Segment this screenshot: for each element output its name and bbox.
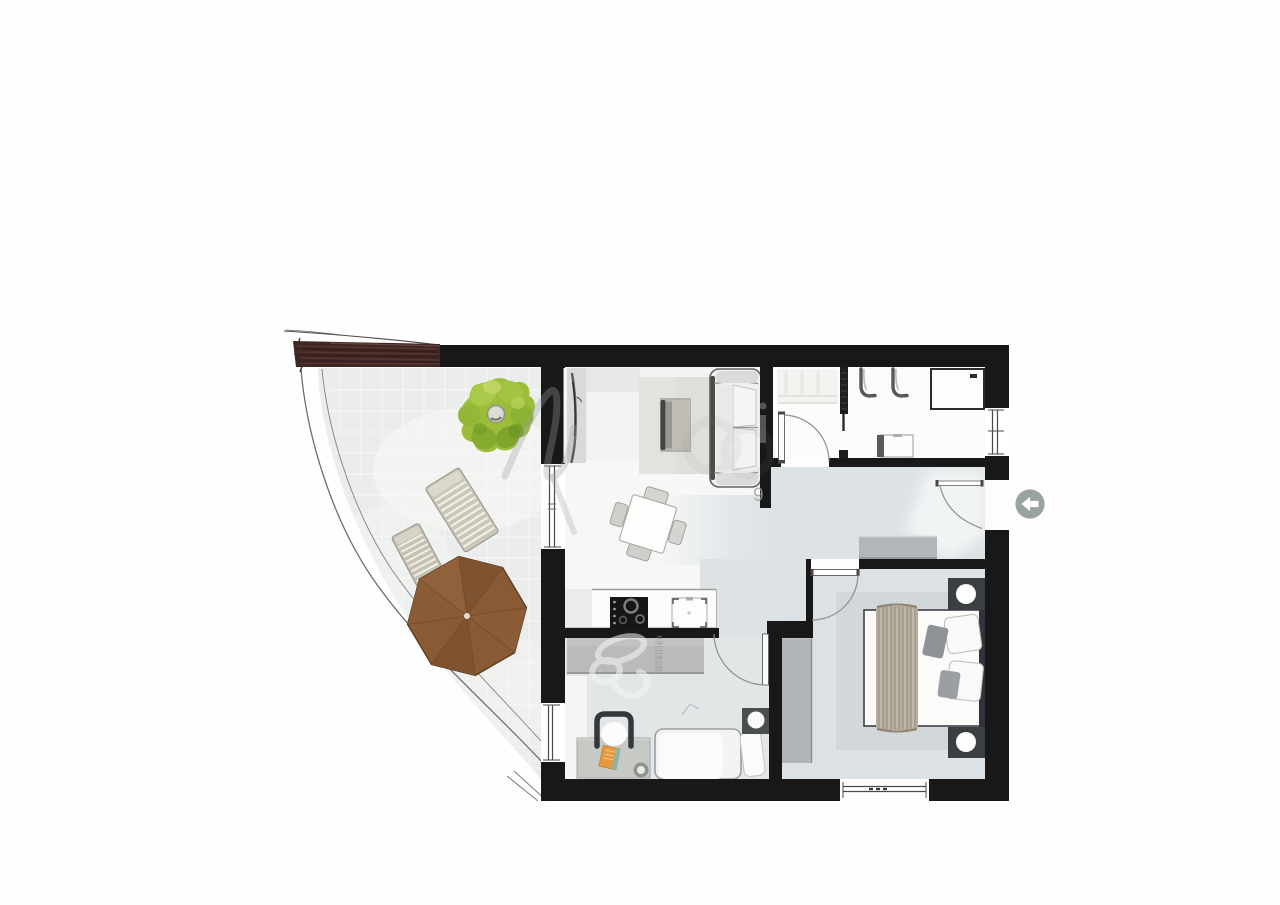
svg-text:9: 9 <box>753 485 764 506</box>
svg-text:MOBILIER: MOBILIER <box>657 634 664 671</box>
